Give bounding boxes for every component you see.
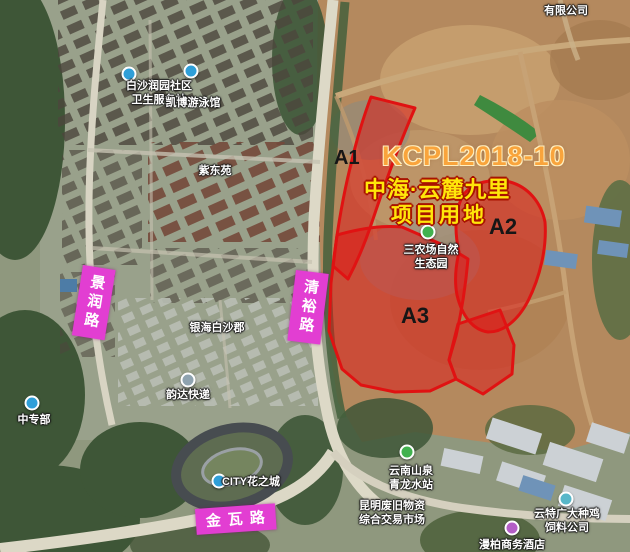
poi-label-zidongyuan: 紫东苑 — [199, 164, 232, 178]
poi-label-hotel: 漫柏商务酒店 — [479, 538, 545, 552]
parcel-code-title: KCPL2018-10 — [382, 141, 566, 172]
swimming-pool-poi-icon — [184, 64, 199, 79]
school-poi-icon — [25, 396, 40, 411]
satellite-map: 白沙润园社区 卫生服务站 凯博游泳馆 紫东苑 银海白沙郡 韵达快递 中专部 CI… — [0, 0, 630, 552]
project-land-use-title: 项目用地 — [391, 199, 487, 229]
zone-label-a2: A2 — [489, 214, 517, 240]
hotel-poi-icon — [505, 521, 520, 536]
pool — [60, 279, 77, 292]
road-label-jinwa-road: 金瓦路 — [195, 503, 277, 535]
poi-label-swimming-pool: 凯博游泳馆 — [166, 96, 221, 110]
feed-company-poi-icon — [559, 492, 574, 507]
poi-label-breeder-feed-co: 云特广大种鸡 饲料公司 — [534, 507, 600, 536]
poi-label-yinhai-baishajun: 银海白沙郡 — [190, 321, 245, 335]
poi-label-zhongzhuanbu: 中专部 — [18, 413, 51, 427]
zone-label-a1: A1 — [334, 147, 360, 170]
poi-label-yunda-express: 韵达快递 — [166, 388, 210, 402]
express-poi-icon — [181, 373, 196, 388]
water-station-poi-icon — [400, 445, 415, 460]
poi-label-recycle-market: 昆明废旧物资 综合交易市场 — [359, 499, 425, 528]
poi-label-sannong-ecopark: 三农场自然 生态园 — [404, 243, 459, 272]
poi-label-limited-company: 有限公司 — [544, 4, 588, 18]
poi-label-city-flower-town: CITY花之城 — [222, 475, 280, 489]
poi-label-yunnan-shanquan: 云南山泉 青龙水站 — [389, 464, 433, 493]
zone-label-a3: A3 — [401, 303, 429, 329]
